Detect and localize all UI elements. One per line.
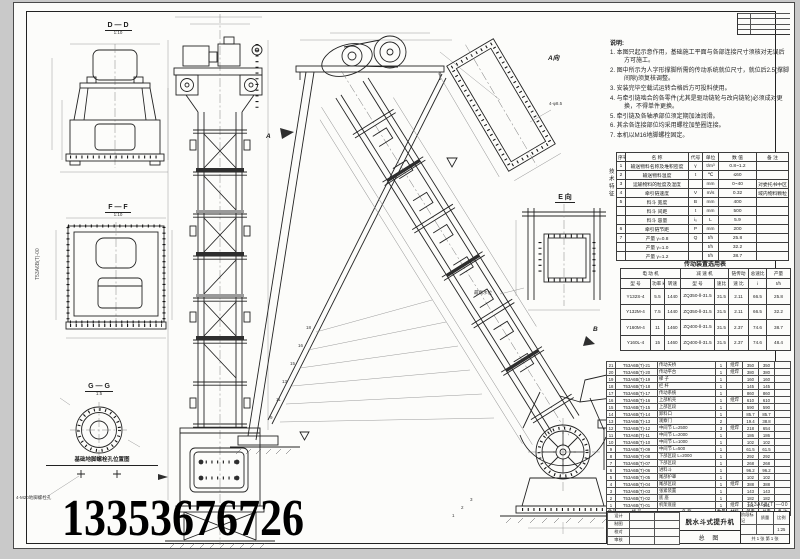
table-cell: [727, 467, 743, 474]
drive-subheader: 功率 kW: [651, 279, 665, 289]
table-cell: 31.5: [715, 289, 729, 305]
table-cell: 400: [719, 198, 757, 207]
flange-frame-detail: [433, 31, 561, 186]
section-gg-scale: 1:5: [76, 392, 122, 397]
table-row: 1输送物料名称及堆积密度γt/m³0.8~1.2: [617, 162, 789, 171]
table-cell: 料斗 宽度: [626, 198, 689, 207]
table-cell: 15: [607, 404, 616, 411]
table-cell: 292: [759, 453, 775, 460]
table-cell: [775, 467, 791, 474]
table-cell: Q: [689, 234, 703, 243]
table-row: Y160L-4151460ZQ400-Ⅱ-31.531.52.3774.648.…: [621, 335, 791, 351]
table-cell: [775, 446, 791, 453]
table-row: 15T53A6B(T)-15上部区段1590590: [607, 404, 791, 411]
leader-number: 3: [470, 498, 473, 503]
table-cell: mm: [703, 207, 719, 216]
table-cell: [757, 243, 789, 252]
table-cell: [775, 453, 791, 460]
drive-subheader: 速比: [715, 279, 729, 289]
table-cell: 牵引链节距: [626, 225, 689, 234]
table-cell: P: [689, 225, 703, 234]
table-cell: 牵引链速度: [626, 189, 689, 198]
section-dd-scale: 1:10: [88, 31, 148, 36]
table-row: 2输送物料温度t℃≤60: [617, 171, 789, 180]
table-cell: 设计: [608, 513, 630, 521]
table-row: 4T53A6B(T)-04尾部区段1组焊388388: [607, 481, 791, 488]
table-cell: [727, 411, 743, 418]
table-cell: t: [689, 207, 703, 216]
table-cell: 7.5: [651, 304, 665, 320]
table-cell: mm: [703, 180, 719, 189]
table-cell: [757, 234, 789, 243]
table-cell: [727, 460, 743, 467]
table-cell: 96.2: [759, 467, 775, 474]
leader-number: 1: [452, 514, 455, 519]
table-row: 校对: [608, 528, 680, 536]
table-cell: 组焊: [727, 425, 743, 432]
table-row: 13T53A6B(T)-13观察门219.438.8: [607, 418, 791, 425]
section-label-gg: G — G 1:5: [76, 383, 122, 397]
view-a-label: A向: [548, 56, 559, 63]
stage-value: [741, 525, 757, 534]
table-cell: 38.7: [767, 320, 791, 336]
mass-value: [757, 525, 773, 534]
table-cell: 74.6: [749, 320, 767, 336]
table-cell: [775, 488, 791, 495]
drive-header: 减 速 机: [681, 269, 729, 279]
table-cell: 66.5: [749, 304, 767, 320]
title-block-name: 脱水斗式提升机 总 图: [680, 512, 741, 543]
table-cell: 3: [716, 425, 727, 432]
table-cell: T53A6B(T)-04: [616, 481, 658, 488]
table-cell: [757, 216, 789, 225]
table-cell: 梯 子: [658, 376, 716, 383]
table-cell: 5: [617, 198, 626, 207]
table-row: Y132S-45.51440ZQ350-Ⅱ-31.531.52.1166.525…: [621, 289, 791, 305]
table-cell: [775, 369, 791, 376]
table-cell: 61.5: [759, 446, 775, 453]
table-cell: [775, 418, 791, 425]
table-cell: m/s: [703, 189, 719, 198]
table-row: 11T53A6B(T)-11中间节 L=20001186186: [607, 432, 791, 439]
table-cell: [630, 536, 655, 544]
table-cell: 2.37: [729, 320, 749, 336]
table-cell: 5.5: [651, 289, 665, 305]
anchor-bolt-detail: [48, 398, 168, 496]
table-cell: 1: [716, 488, 727, 495]
table-cell: 1: [716, 453, 727, 460]
table-row: 8T53A6B(T)-08下部区段 L=20001292292: [607, 453, 791, 460]
table-cell: 102: [743, 439, 759, 446]
table-cell: 尾部护罩: [658, 474, 716, 481]
table-row: 5料斗 宽度Bmm400: [617, 198, 789, 207]
phone-number-watermark: 13353676726: [62, 488, 304, 548]
table-cell: 上部区段: [658, 404, 716, 411]
table-cell: 654: [759, 425, 775, 432]
table-cell: 中间节 L=2500: [658, 425, 716, 432]
table-cell: 1: [716, 495, 727, 502]
table-cell: 3: [617, 180, 626, 189]
mass-label: 质量: [757, 512, 773, 524]
signature-rows: 设计制图校对审核: [608, 513, 680, 545]
table-cell: T53A6B(T)-17: [616, 390, 658, 397]
scale-label: 比例: [774, 512, 789, 524]
table-cell: T53A6B(T)-15: [616, 404, 658, 411]
table-cell: 25.8: [767, 289, 791, 305]
section-ff-scale: 1:10: [88, 213, 148, 218]
leader-number: 15: [290, 362, 295, 367]
table-cell: [775, 425, 791, 432]
table-cell: 5.9: [719, 216, 757, 225]
drawing-type: 总 图: [680, 530, 740, 543]
table-cell: 590: [759, 404, 775, 411]
table-cell: 13: [607, 418, 616, 425]
table-cell: [775, 495, 791, 502]
table-cell: 31.5: [715, 304, 729, 320]
table-cell: 32.2: [767, 304, 791, 320]
table-cell: ℃: [703, 171, 719, 180]
section-label-dd: D — D 1:10: [88, 22, 148, 36]
table-cell: [757, 162, 789, 171]
table-cell: Y160L-4: [621, 335, 651, 351]
table-cell: T53A6B(T)-02: [616, 495, 658, 502]
table-cell: [727, 439, 743, 446]
list-item: 6. 其余各连接部位均采用螺栓加垫圈连接。: [610, 122, 790, 131]
table-cell: 96.2: [743, 467, 759, 474]
table-row: 18T53A6B(T)-18栏 杆1145145: [607, 383, 791, 390]
table-cell: t/m³: [703, 162, 719, 171]
table-cell: T53A6B(T)-20: [616, 369, 658, 376]
table-cell: T53A6B(T)-09: [616, 446, 658, 453]
table-cell: T53A6B(T)-19: [616, 376, 658, 383]
table-cell: [727, 432, 743, 439]
drive-subheader: 转速: [665, 279, 681, 289]
table-cell: 1440: [665, 304, 681, 320]
table-cell: 1: [716, 446, 727, 453]
spec-table-body: 1输送物料名称及堆积密度γt/m³0.8~1.22输送物料温度t℃≤603运输物…: [617, 162, 789, 261]
table-row: 2T53A6B(T)-02底 座1182182: [607, 495, 791, 502]
table-cell: 2.37: [729, 335, 749, 351]
table-cell: Y132M-4: [621, 304, 651, 320]
table-cell: Y160M-4: [621, 320, 651, 336]
table-cell: 388: [743, 481, 759, 488]
table-row: 17T53A6B(T)-17传动系统1860860: [607, 390, 791, 397]
table-cell: 610: [759, 397, 775, 404]
table-cell: 中间节 L=2000: [658, 432, 716, 439]
table-cell: 1: [716, 481, 727, 488]
drive-subheader: 速 比: [729, 279, 749, 289]
notes-list: 1. 本图只起示意作用，基础施工平面与各部连接尺寸须核对无误后方可施工。2. 图…: [610, 49, 790, 141]
table-cell: 1: [716, 460, 727, 467]
drive-table: 电 动 机 减 速 机 链传动 总速比 产量 型 号 功率 kW 转速 型 号 …: [620, 268, 791, 351]
table-cell: 域内物料颗粒: [757, 189, 789, 198]
table-cell: 1: [716, 376, 727, 383]
table-row: Y132M-47.51440ZQ350-Ⅱ-31.531.52.1166.532…: [621, 304, 791, 320]
drive-header: 产量: [767, 269, 791, 279]
table-cell: 18: [607, 383, 616, 390]
info-row: 共 1 张 第 1 张: [741, 535, 789, 544]
table-cell: 182: [743, 495, 759, 502]
table-cell: T53A6B(T)-12: [616, 425, 658, 432]
table-cell: T53A6B(T)-13: [616, 418, 658, 425]
table-cell: [727, 404, 743, 411]
section-view-ff: [56, 218, 172, 338]
leader-number: 9: [270, 416, 273, 421]
table-cell: t/h: [703, 234, 719, 243]
drive-subheader: i: [749, 279, 767, 289]
spec-header: 备 注: [757, 153, 789, 162]
table-row: 19T53A6B(T)-19梯 子1160160: [607, 376, 791, 383]
table-cell: 组焊: [727, 362, 743, 369]
table-cell: T53A6B(T)-03: [616, 488, 658, 495]
table-cell: 21: [607, 362, 616, 369]
table-row: 5T53A6B(T)-05尾部护罩1102102: [607, 474, 791, 481]
table-cell: 制图: [608, 520, 630, 528]
table-cell: 2.11: [729, 289, 749, 305]
spec-side-label: 技术特征: [607, 168, 613, 244]
table-cell: 6: [607, 467, 616, 474]
table-row: 20T53A6B(T)-20传动平台1组焊380380: [607, 369, 791, 376]
list-item: 5. 牵引链及各轴承部位须定期加油润滑。: [610, 113, 790, 122]
table-cell: t/h: [703, 243, 719, 252]
table-cell: 输送物料温度: [626, 171, 689, 180]
table-cell: 底 座: [658, 495, 716, 502]
table-cell: 860: [759, 390, 775, 397]
drive-table-body: Y132S-45.51440ZQ350-Ⅱ-31.531.52.1166.525…: [621, 289, 791, 351]
table-cell: [775, 404, 791, 411]
drive-header: 电 动 机: [621, 269, 681, 279]
info-row: 阶段标记 质量 比例: [741, 512, 789, 525]
table-cell: T53A6B(T)-05: [616, 474, 658, 481]
table-cell: 145: [759, 383, 775, 390]
table-cell: 102: [759, 439, 775, 446]
table-cell: [617, 207, 626, 216]
table-cell: [689, 180, 703, 189]
leader-number: 2: [461, 506, 464, 511]
table-cell: 0.8~1.2: [719, 162, 757, 171]
table-row: 16T53A6B(T)-16上部机壳1组焊610610: [607, 397, 791, 404]
table-cell: 0~40: [719, 180, 757, 189]
table-cell: 31.5: [715, 320, 729, 336]
spec-header: 序号: [617, 153, 626, 162]
table-cell: [775, 383, 791, 390]
table-cell: 中间节 L=500: [658, 446, 716, 453]
spec-header: 数 值: [719, 153, 757, 162]
table-cell: 卸料口: [658, 411, 716, 418]
title-block-info: 阶段标记 质量 比例 1:25 共 1 张 第 1 张: [741, 512, 789, 543]
drive-table-title: 传动装置选用表: [620, 259, 790, 268]
table-cell: 1460: [665, 335, 681, 351]
table-cell: 1: [716, 432, 727, 439]
table-cell: [727, 383, 743, 390]
table-cell: [630, 528, 655, 536]
table-cell: 143: [743, 488, 759, 495]
spec-header: 代号: [689, 153, 703, 162]
table-cell: 182: [759, 495, 775, 502]
table-cell: 校对: [608, 528, 630, 536]
water-line-label: 最高水位: [474, 291, 492, 296]
table-cell: ZQ350-Ⅱ-31.5: [681, 289, 715, 305]
table-cell: [775, 362, 791, 369]
table-cell: [775, 474, 791, 481]
table-cell: T53A6B(T)-11: [616, 432, 658, 439]
table-cell: 48.4: [767, 335, 791, 351]
table-cell: 15: [651, 335, 665, 351]
table-cell: 3: [607, 488, 616, 495]
view-e-text: E 向: [555, 194, 575, 203]
table-cell: 料斗 容量: [626, 216, 689, 225]
table-cell: 4: [617, 189, 626, 198]
table-cell: 对委托书中区: [757, 180, 789, 189]
table-row: 14T53A6B(T)-14卸料口185.785.7: [607, 411, 791, 418]
table-cell: 6: [617, 225, 626, 234]
bom-table: 21T53A6B(T)-21传动天桥1组焊35035020T53A6B(T)-2…: [606, 361, 791, 516]
table-cell: 组焊: [727, 481, 743, 488]
table-cell: 1: [607, 502, 616, 509]
table-cell: [775, 439, 791, 446]
table-row: 设计: [608, 513, 680, 521]
table-cell: 388: [759, 481, 775, 488]
table-cell: 1: [716, 369, 727, 376]
leader-number: 13: [282, 380, 287, 385]
table-cell: 5: [607, 474, 616, 481]
table-cell: 186: [759, 432, 775, 439]
table-cell: mm: [703, 198, 719, 207]
table-row: 制图: [608, 520, 680, 528]
table-cell: B: [689, 198, 703, 207]
table-cell: 7: [617, 234, 626, 243]
sheets-value: 共 1 张 第 1 张: [741, 535, 789, 544]
arrow-a-label: A: [266, 134, 271, 141]
notes-title: 说明:: [610, 41, 624, 47]
table-row: 7T53A6B(T)-07下部区段1268268: [607, 460, 791, 467]
table-cell: [775, 397, 791, 404]
table-row: 审核: [608, 536, 680, 544]
table-cell: 500: [719, 207, 757, 216]
table-row: 料斗 间距tmm500: [617, 207, 789, 216]
table-cell: 17: [607, 390, 616, 397]
stage-label: 阶段标记: [741, 512, 757, 524]
table-cell: 下部区段 L=2000: [658, 453, 716, 460]
table-cell: 1: [716, 474, 727, 481]
spec-header: 名 称: [626, 153, 689, 162]
drive-group-header: 电 动 机 减 速 机 链传动 总速比 产量: [621, 269, 791, 279]
table-cell: 审核: [608, 536, 630, 544]
table-cell: 2.11: [729, 304, 749, 320]
casing-flanges: [353, 109, 574, 423]
table-cell: Y132S-4: [621, 289, 651, 305]
title-block: 设计制图校对审核 脱水斗式提升机 总 图 阶段标记 质量 比例 1:25 共 1…: [606, 511, 790, 544]
table-cell: 19: [607, 376, 616, 383]
table-cell: ≤60: [719, 171, 757, 180]
table-cell: 1440: [665, 289, 681, 305]
table-cell: ZQ350-Ⅱ-31.5: [681, 304, 715, 320]
table-cell: 1: [716, 383, 727, 390]
table-cell: [757, 171, 789, 180]
table-cell: 产量 γ=1.0: [626, 243, 689, 252]
table-cell: [617, 243, 626, 252]
table-cell: T53A6B(T)-16: [616, 397, 658, 404]
table-cell: 1: [716, 439, 727, 446]
table-cell: 2: [617, 171, 626, 180]
table-row: 3T53A6B(T)-03张紧装置1143143: [607, 488, 791, 495]
arrow-b-label: B: [593, 327, 598, 334]
signature-table: 设计制图校对审核: [607, 512, 680, 545]
table-cell: 200: [719, 225, 757, 234]
table-cell: 1460: [665, 320, 681, 336]
table-cell: L: [703, 216, 719, 225]
table-cell: 380: [743, 369, 759, 376]
table-cell: 590: [743, 404, 759, 411]
table-cell: 32.2: [719, 243, 757, 252]
table-cell: 7: [607, 460, 616, 467]
table-cell: 20: [607, 369, 616, 376]
table-cell: 74.6: [749, 335, 767, 351]
table-cell: T53A6B(T)-08: [616, 453, 658, 460]
section-view-dd: [52, 44, 168, 172]
table-cell: [727, 474, 743, 481]
table-cell: 12: [607, 425, 616, 432]
table-cell: [775, 376, 791, 383]
table-cell: 中间节 L=1000: [658, 439, 716, 446]
spec-header: 单位: [703, 153, 719, 162]
table-cell: [757, 225, 789, 234]
table-cell: T53A6B(T)-21: [616, 362, 658, 369]
table-cell: 85.7: [759, 411, 775, 418]
table-row: 6T53A6B(T)-06进料斗196.296.2: [607, 467, 791, 474]
table-row: 10T53A6B(T)-10中间节 L=10001102102: [607, 439, 791, 446]
table-cell: [775, 390, 791, 397]
table-cell: [727, 376, 743, 383]
table-cell: [630, 513, 655, 521]
table-cell: 组焊: [727, 369, 743, 376]
table-cell: ZQ400-Ⅱ-31.5: [681, 320, 715, 336]
table-cell: 输送物料名称及堆积密度: [626, 162, 689, 171]
table-cell: T53A6B(T)-06: [616, 467, 658, 474]
leader-number: 11: [276, 398, 281, 403]
table-cell: T53A6B(T)-01: [616, 502, 658, 509]
margin-code: T53A6B(T)-00: [36, 248, 41, 280]
table-cell: γ: [689, 162, 703, 171]
hole-note: 4-φ8.5: [549, 102, 562, 107]
table-cell: 186: [743, 432, 759, 439]
table-cell: [630, 520, 655, 528]
table-row: 6牵引链节距Pmm200: [617, 225, 789, 234]
table-cell: 进料斗: [658, 467, 716, 474]
table-cell: [775, 481, 791, 488]
table-cell: 11: [607, 432, 616, 439]
drive-subheader: t/h: [767, 279, 791, 289]
table-cell: [757, 207, 789, 216]
table-cell: 350: [759, 362, 775, 369]
table-row: Y160M-4111460ZQ400-Ⅱ-31.531.52.3774.638.…: [621, 320, 791, 336]
table-cell: 产量 γ=0.8: [626, 234, 689, 243]
table-cell: 1: [716, 404, 727, 411]
table-cell: T53A6B(T)-18: [616, 383, 658, 390]
table-cell: 下部区段: [658, 460, 716, 467]
view-e-label: E 向: [548, 194, 582, 203]
table-cell: 传动平台: [658, 369, 716, 376]
spec-table: 序号 名 称 代号 单位 数 值 备 注 1输送物料名称及堆积密度γt/m³0.…: [616, 152, 789, 261]
list-item: 4. 与牵引链啮合的各零件(尤其是驱动链轮与改向链轮)必须成对更换，不得单件更换…: [610, 95, 790, 112]
table-cell: [775, 460, 791, 467]
info-row: 1:25: [741, 525, 789, 535]
table-cell: t: [689, 171, 703, 180]
table-cell: 2: [607, 495, 616, 502]
table-cell: 102: [743, 474, 759, 481]
table-cell: 8: [607, 453, 616, 460]
list-item: 1. 本图只起示意作用，基础施工平面与各部连接尺寸须核对无误后方可施工。: [610, 49, 790, 66]
